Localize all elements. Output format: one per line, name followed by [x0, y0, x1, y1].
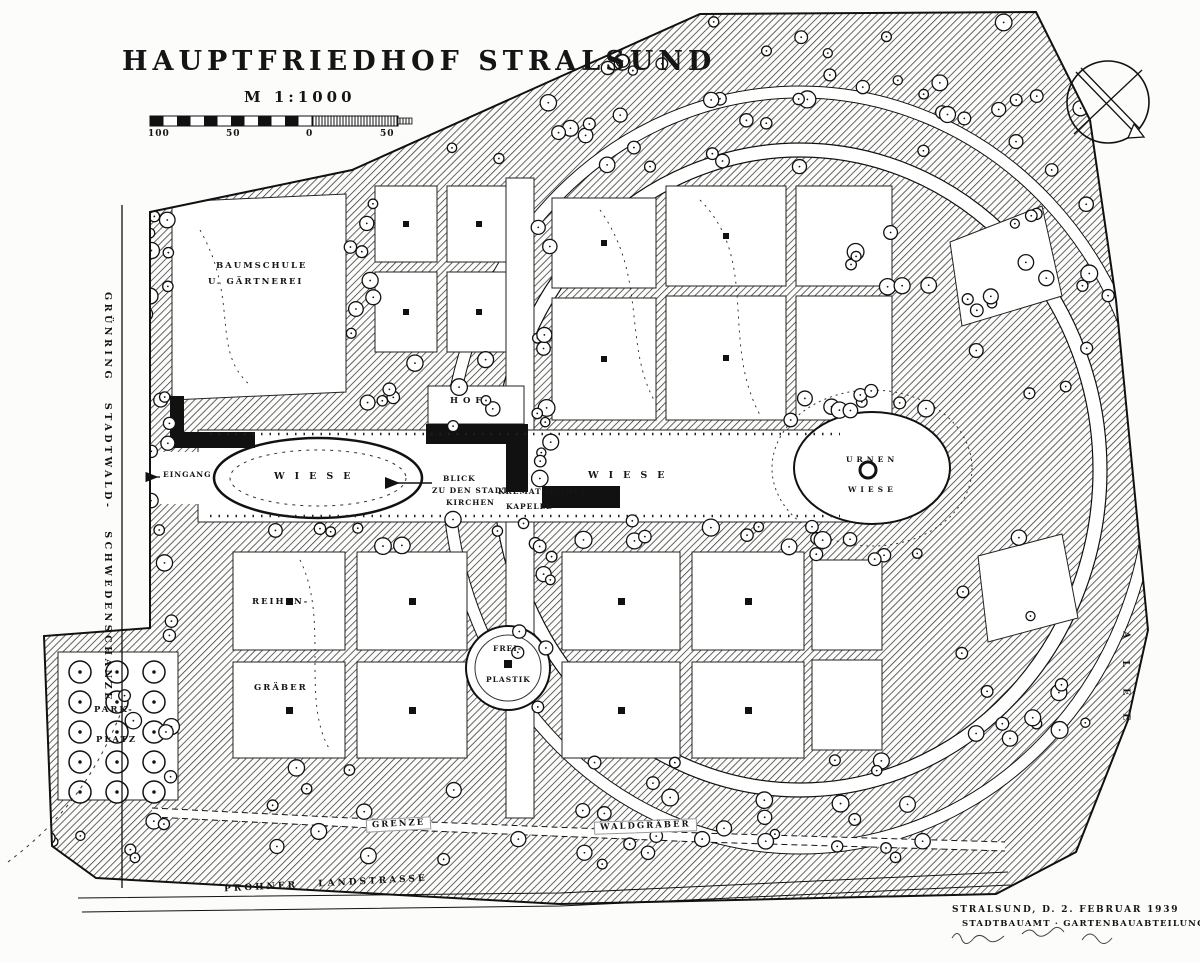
east-letter-3: E	[1121, 688, 1131, 695]
parking-trees	[69, 661, 165, 803]
graeber-label: GRÄBER	[254, 684, 308, 693]
baumschule-field	[172, 194, 346, 400]
scale-tick-100: 100	[148, 130, 170, 139]
scale-tick-50l: 50	[226, 130, 241, 139]
east-letter-1: A	[1121, 631, 1131, 638]
urnen-label-1: URNEN	[846, 456, 898, 464]
baumschule-label-1: BAUMSCHULE	[216, 262, 307, 271]
scale-bar	[150, 116, 412, 126]
cemetery-plan-page: { "page": { "title": "HAUPTFRIEDHOF STRA…	[0, 0, 1200, 963]
green-ring-label: GRÜNRING STADTWALD- SCHWEDENSCHANZE	[103, 292, 113, 703]
hof-label: HOF	[450, 397, 486, 406]
wiese-west-label: WIESE	[274, 472, 360, 482]
krematorium-label-1: KREMATORIUM U.	[498, 488, 592, 496]
hof-building	[426, 424, 528, 444]
blick-label-1: BLICK	[443, 475, 476, 483]
eingang-label: EINGANG	[163, 471, 212, 479]
reihen-label: REIHEN-	[252, 598, 309, 607]
plastik-label: PLASTIK	[486, 676, 531, 684]
map-body	[0, 0, 1200, 963]
east-letter-4: E	[1121, 713, 1131, 720]
frei-label: FREI-	[493, 645, 522, 653]
sculpture-circle	[466, 626, 550, 710]
signature-handwriting	[952, 927, 1112, 943]
park-label-2: PLATZ	[96, 736, 137, 745]
urn-monument	[860, 462, 876, 478]
scale-tick-50r: 50	[380, 130, 395, 139]
urnen-label-2: WIESE	[848, 486, 897, 494]
krematorium-label-2: KAPELLE	[506, 503, 553, 511]
scale-tick-0: 0	[306, 130, 313, 139]
map-drawing	[0, 0, 1200, 963]
blick-label-3: KIRCHEN	[446, 499, 495, 507]
footer-date: STRALSUND, D. 2. FEBRUAR 1939	[952, 906, 1179, 915]
wiese-mitte-label: WIESE	[588, 471, 674, 481]
scale-label: M 1:1000	[244, 90, 356, 105]
east-letter-2: L	[1121, 660, 1131, 667]
baumschule-label-2: U. GÄRTNEREI	[208, 278, 303, 287]
park-label-1: PARK-	[94, 706, 134, 715]
page-title: HAUPTFRIEDHOF STRALSUND	[122, 48, 716, 75]
footer-office: STADTBAUAMT · GARTENBAUABTEILUNG	[962, 920, 1200, 929]
